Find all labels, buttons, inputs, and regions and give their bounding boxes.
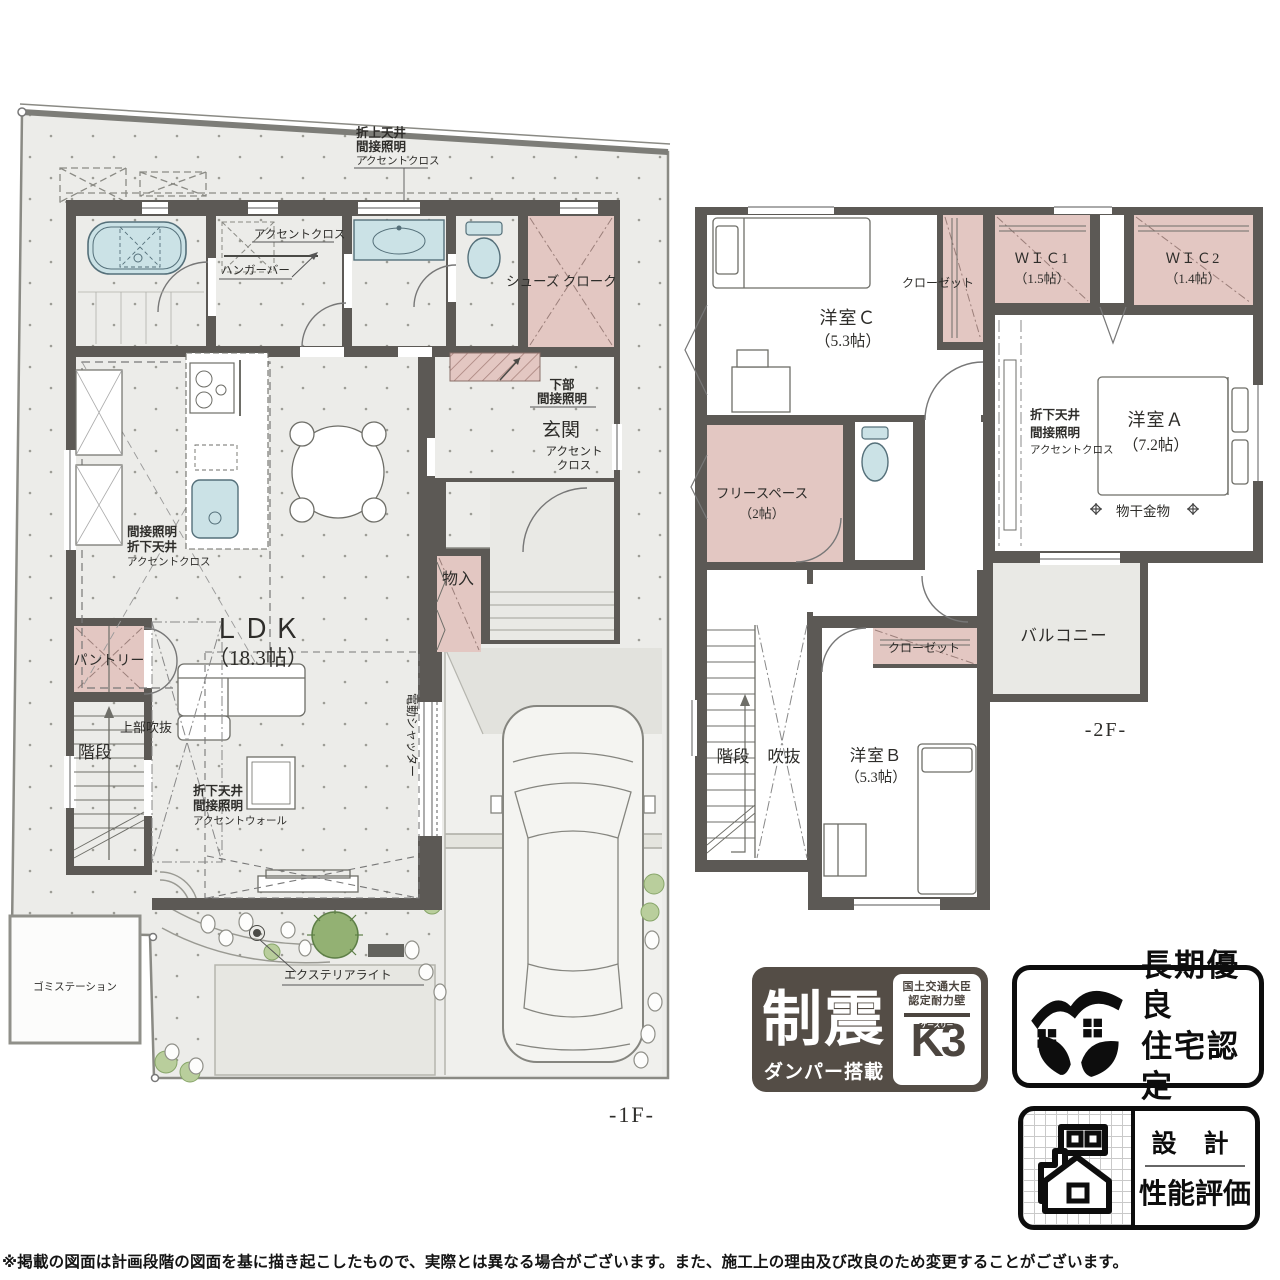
orisage-living-1: 折下天井: [193, 783, 244, 798]
sekkei-grid-panel: [1023, 1111, 1135, 1225]
chair-c: [737, 350, 768, 367]
monohoshi-label: 物干金物: [1116, 504, 1170, 519]
ldk-label: ＬＤＫ: [213, 614, 303, 644]
choki-line2: 住宅認定: [1141, 1027, 1259, 1108]
room-a-size: （7.2帖）: [1123, 436, 1189, 454]
closet-b-label: クローゼット: [888, 641, 960, 655]
orisage-2f-2: 間接照明: [1030, 425, 1080, 440]
monoire-label: 物入: [442, 570, 474, 588]
k3-panel: 国土交通大臣 認定耐力壁 K3ケースリー: [893, 974, 981, 1085]
kabu-label-2: 間接照明: [537, 391, 587, 406]
balcony-label: バルコニー: [1020, 626, 1107, 645]
room-a-label: 洋室Ａ: [1128, 410, 1185, 430]
orisage-kitchen-2: 折下天井: [127, 539, 178, 554]
free-space-size: （2帖）: [739, 506, 785, 521]
boundary-corner-marker: [150, 934, 157, 941]
k3-cert-line2: 認定耐力壁: [893, 995, 981, 1009]
tree: [312, 912, 358, 958]
floor-label-1f: -1F-: [609, 1102, 655, 1127]
genkan-label: 玄関: [542, 419, 580, 441]
stove: [190, 363, 234, 413]
stairs-2f: [707, 625, 755, 858]
orisage-kitchen-3: アクセントクロス: [127, 556, 210, 568]
floor-label-2f: -2F-: [1085, 719, 1127, 741]
choki-yuryo-badge: 長期優良 住宅認定: [1012, 965, 1264, 1088]
sofa: [178, 664, 305, 716]
paver-step: [368, 944, 404, 957]
orisage-living-3: アクセントウォール: [193, 815, 287, 827]
disclaimer-text: ※掲載の図面は計画段階の図面を基に描き起こしたもので、実際とは異なる場合がござい…: [2, 1250, 1280, 1272]
shoes-cloak-label: シューズ クローク: [506, 274, 617, 289]
k3-cert-line1: 国土交通大臣: [893, 981, 981, 995]
boundary-corner-marker: [152, 1075, 159, 1082]
wic2-label: ＷＩＣ2: [1166, 251, 1221, 267]
sekkei-house-icon: [1031, 1119, 1123, 1215]
k3-ruby: ケースリー: [919, 1023, 955, 1030]
stairs-label-1f: 階段: [78, 743, 112, 762]
pillow-a: [1232, 440, 1248, 484]
sekkei-line1: 設 計: [1152, 1124, 1239, 1160]
genkan-accent-1: アクセント: [546, 445, 603, 458]
vanity: [354, 220, 444, 260]
joubu-fukinuke-label: 上部吹抜: [120, 720, 172, 735]
ldk-size-label: （18.3帖）: [208, 646, 308, 670]
closet-c-label: クローゼット: [902, 276, 974, 290]
seishin-title: 制震: [762, 971, 886, 1058]
sekkei-divider: [1145, 1165, 1245, 1167]
pantry-label: パントリー: [74, 653, 145, 669]
oriage-label-2: 間接照明: [356, 139, 406, 154]
gomi-station-box: [10, 916, 140, 1043]
pillow-b: [922, 748, 972, 772]
dining-set: [290, 422, 386, 522]
fukinuke-label: 吹抜: [768, 747, 801, 766]
car-mirror-right: [644, 796, 655, 813]
room-b-label: 洋室Ｂ: [850, 746, 903, 765]
accent-ceiling-band: [999, 320, 1021, 548]
sekkei-hyouka-badge: 設 計 性能評価: [1018, 1106, 1260, 1230]
room-c-label: 洋室Ｃ: [820, 308, 877, 328]
car: [491, 706, 655, 1062]
gomi-station-label: ゴミステーション: [33, 980, 117, 993]
stairs-label-2f: 階段: [717, 747, 750, 766]
wic1-label: ＷＩＣ1: [1015, 251, 1070, 267]
orisage-kitchen-1: 間接照明: [127, 524, 177, 539]
orisage-2f-1: 折下天井: [1030, 407, 1081, 422]
desk-c: [732, 367, 790, 412]
seishin-damper-badge: 制震 ダンパー搭載 国土交通大臣 認定耐力壁 K3ケースリー: [752, 967, 988, 1092]
kabu-label-1: 下部: [549, 377, 575, 392]
wic2-size: （1.4帖）: [1165, 271, 1220, 286]
seishin-subtitle: ダンパー搭載: [764, 1057, 884, 1084]
desk-b: [824, 824, 866, 876]
free-space-label: フリースペース: [716, 486, 808, 501]
toilet-2f: [862, 427, 888, 481]
pillow-a: [1232, 388, 1248, 432]
bed-a: [1098, 377, 1228, 495]
choki-line1: 長期優良: [1141, 946, 1259, 1027]
sekkei-line2: 性能評価: [1139, 1172, 1251, 1212]
room-c-size: （5.3帖）: [815, 332, 881, 350]
genkan-accent-2: クロス: [557, 459, 592, 472]
floorplan-2f: 洋室Ｃ （5.3帖） クローゼット ＷＩＣ1 （1.5帖） ＷＩＣ2 （1.4帖…: [680, 190, 1280, 960]
room-b-size: （5.3帖）: [845, 769, 907, 786]
car-mirror-left: [491, 796, 502, 813]
hanger-bar-label: ハンガーバー: [221, 264, 290, 277]
exterior-light-label: エクステリアライト: [284, 968, 392, 982]
accent-cross-laundry: アクセントクロス: [254, 228, 345, 241]
pillow-c: [716, 226, 738, 274]
oriage-label-3: アクセントクロス: [356, 155, 439, 167]
genkan-porch: [490, 482, 614, 640]
exterior-light-symbol: [253, 929, 261, 937]
kitchen-sink: [192, 480, 238, 538]
choki-logo: [1025, 975, 1129, 1079]
toilet-1f: [466, 222, 502, 278]
floorplan-1f: 折上天井 間接照明 アクセントクロス アクセントクロス ハンガーバー シューズ …: [0, 100, 680, 1135]
void-2f: [757, 625, 807, 858]
coffee-table: [247, 757, 295, 809]
wic1-size: （1.5帖）: [1014, 271, 1069, 286]
orisage-living-2: 間接照明: [193, 798, 243, 813]
genkan-shelf: [450, 353, 540, 381]
boundary-corner-marker: [18, 108, 26, 116]
garage: [445, 648, 662, 1075]
oriage-label-1: 折上天井: [356, 125, 407, 140]
orisage-2f-3: アクセントクロス: [1030, 444, 1113, 456]
electric-shutter-label: 電動シャッター: [405, 693, 419, 777]
k3-logo: K3ケースリー: [893, 1017, 981, 1063]
floorplan-sheet: 折上天井 間接照明 アクセントクロス アクセントクロス ハンガーバー シューズ …: [0, 0, 1280, 1280]
